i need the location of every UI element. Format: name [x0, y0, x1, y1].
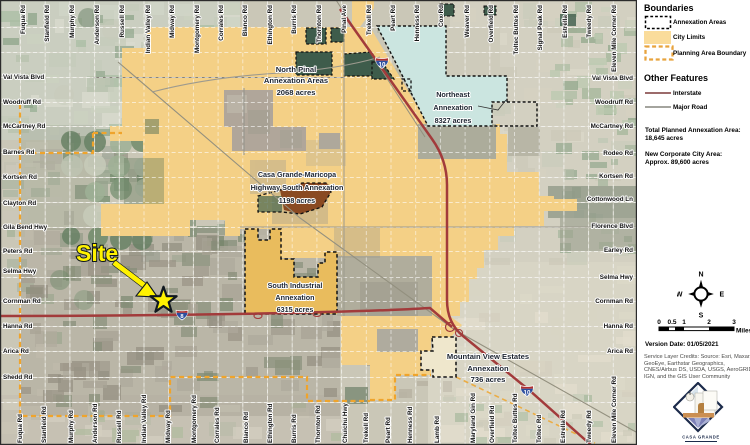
svg-text:Selma Hwy: Selma Hwy	[3, 268, 37, 275]
svg-text:Stanfield Rd: Stanfield Rd	[44, 5, 51, 42]
svg-text:Eleven Mile Corner Rd: Eleven Mile Corner Rd	[611, 5, 618, 72]
svg-text:Annexation: Annexation	[433, 103, 472, 112]
svg-text:N: N	[698, 272, 703, 279]
svg-text:Burris Rd: Burris Rd	[291, 5, 298, 34]
svg-text:McCartney Rd: McCartney Rd	[591, 123, 633, 130]
svg-text:Florence Blvd: Florence Blvd	[591, 223, 633, 230]
svg-text:Site: Site	[76, 240, 118, 266]
svg-text:Blanco Rd: Blanco Rd	[242, 5, 249, 36]
svg-text:Indian Valley Rd: Indian Valley Rd	[145, 5, 152, 53]
svg-text:10: 10	[524, 389, 531, 396]
svg-text:Kortsen Rd: Kortsen Rd	[3, 174, 37, 181]
svg-text:Hanna Rd: Hanna Rd	[3, 323, 33, 330]
svg-text:Henness Rd: Henness Rd	[414, 5, 421, 42]
svg-text:Rodeo Rd: Rodeo Rd	[603, 150, 633, 157]
svg-text:Trekell Rd: Trekell Rd	[366, 5, 373, 35]
svg-text:Selma Hwy: Selma Hwy	[600, 274, 634, 281]
svg-text:Overfield Rd: Overfield Rd	[488, 5, 495, 43]
svg-text:Indian Valley Rd: Indian Valley Rd	[141, 395, 148, 443]
svg-text:2: 2	[707, 319, 711, 326]
svg-text:Cornman Rd: Cornman Rd	[595, 298, 633, 305]
svg-text:Anderson Rd: Anderson Rd	[92, 403, 99, 443]
svg-text:2068 acres: 2068 acres	[277, 88, 316, 97]
svg-text:1198 acres: 1198 acres	[279, 196, 315, 205]
svg-text:0: 0	[657, 319, 661, 326]
svg-text:Fuqua Rd: Fuqua Rd	[17, 414, 24, 443]
svg-text:Hanna Rd: Hanna Rd	[604, 323, 634, 330]
svg-text:Peters Rd: Peters Rd	[3, 248, 33, 255]
svg-text:10: 10	[379, 61, 386, 68]
svg-text:Cornman Rd: Cornman Rd	[3, 298, 41, 305]
svg-text:Kortsen Rd: Kortsen Rd	[599, 173, 633, 180]
svg-text:Northeast: Northeast	[436, 90, 470, 99]
svg-text:Miles: Miles	[736, 328, 750, 335]
svg-text:Woodruff Rd: Woodruff Rd	[595, 99, 633, 106]
svg-text:E: E	[720, 292, 725, 299]
svg-text:Estrella Rd: Estrella Rd	[560, 410, 567, 443]
svg-text:Murphy Rd: Murphy Rd	[68, 410, 75, 443]
svg-text:Russell Rd: Russell Rd	[116, 410, 123, 443]
svg-text:Annexation Areas: Annexation Areas	[264, 76, 328, 85]
svg-text:Peart Rd: Peart Rd	[385, 417, 392, 443]
svg-text:Cox Rd: Cox Rd	[438, 5, 445, 27]
svg-text:Toltec Buttes Rd: Toltec Buttes Rd	[513, 5, 520, 55]
svg-text:Toltec Rd: Toltec Rd	[536, 415, 543, 443]
svg-text:North Pinal: North Pinal	[276, 65, 317, 74]
svg-text:3: 3	[732, 319, 736, 326]
svg-text:Tweedy Rd: Tweedy Rd	[586, 5, 593, 38]
svg-text:Arica Rd: Arica Rd	[3, 348, 29, 355]
svg-text:Weaver Rd: Weaver Rd	[464, 5, 471, 38]
svg-text:Montgomery Rd: Montgomery Rd	[194, 5, 201, 53]
svg-text:W: W	[677, 292, 683, 299]
svg-text:Fuqua Rd: Fuqua Rd	[20, 5, 27, 34]
svg-text:Tweedy Rd: Tweedy Rd	[586, 410, 593, 443]
svg-text:Earley Rd: Earley Rd	[604, 247, 633, 254]
svg-text:Corrales Rd: Corrales Rd	[218, 5, 225, 41]
svg-text:Midway Rd: Midway Rd	[169, 5, 176, 38]
svg-text:Casa Grande-Maricopa: Casa Grande-Maricopa	[258, 170, 337, 179]
svg-text:Pinal Ave: Pinal Ave	[341, 5, 348, 33]
svg-text:Eleven Mile Corner Rd: Eleven Mile Corner Rd	[611, 376, 618, 443]
svg-text:Barnes Rd: Barnes Rd	[3, 149, 35, 156]
svg-text:Thornton Rd: Thornton Rd	[315, 405, 322, 443]
svg-text:Estrella Rd: Estrella Rd	[562, 5, 569, 38]
svg-text:Clayton Rd: Clayton Rd	[3, 200, 36, 207]
svg-text:Overfield Rd: Overfield Rd	[489, 405, 496, 443]
svg-text:Shedd Rd: Shedd Rd	[3, 374, 33, 381]
svg-text:Mountain View Estates: Mountain View Estates	[447, 352, 529, 361]
svg-text:Cottonwood Ln: Cottonwood Ln	[587, 196, 633, 203]
svg-text:0.5: 0.5	[667, 319, 676, 326]
svg-text:Ethington Rd: Ethington Rd	[267, 403, 274, 443]
svg-text:Midway Rd: Midway Rd	[165, 410, 172, 443]
svg-text:Annexation: Annexation	[467, 364, 509, 373]
svg-text:Trekell Rd: Trekell Rd	[363, 413, 370, 443]
svg-text:Henness Rd: Henness Rd	[407, 406, 414, 443]
svg-text:736 acres: 736 acres	[471, 375, 506, 384]
svg-text:1: 1	[682, 319, 686, 326]
svg-text:Peart Rd: Peart Rd	[390, 5, 397, 31]
svg-text:Val Vista Blvd: Val Vista Blvd	[592, 75, 633, 82]
svg-text:CASA GRANDE: CASA GRANDE	[682, 435, 720, 440]
svg-text:Annexation: Annexation	[275, 293, 314, 302]
svg-text:Highway South Annexation: Highway South Annexation	[251, 183, 344, 192]
svg-text:Blanco Rd: Blanco Rd	[243, 412, 250, 443]
svg-text:South Industrial: South Industrial	[268, 281, 323, 290]
svg-text:Chuichu Hwy: Chuichu Hwy	[342, 403, 349, 443]
svg-text:Corrales Rd: Corrales Rd	[214, 407, 221, 443]
svg-text:Russell Rd: Russell Rd	[119, 5, 126, 38]
svg-text:Burris Rd: Burris Rd	[291, 414, 298, 443]
svg-text:Arica Rd: Arica Rd	[607, 348, 633, 355]
svg-text:Val Vista Blvd: Val Vista Blvd	[3, 74, 44, 81]
svg-text:McCartney Rd: McCartney Rd	[3, 123, 45, 130]
svg-text:Stanfield Rd: Stanfield Rd	[41, 406, 48, 443]
svg-text:Woodruff Rd: Woodruff Rd	[3, 99, 41, 106]
svg-text:Anderson Rd: Anderson Rd	[94, 5, 101, 45]
svg-text:8327 acres: 8327 acres	[435, 116, 472, 125]
svg-text:Thornton Rd: Thornton Rd	[316, 5, 323, 43]
svg-text:Gila Bend Hwy: Gila Bend Hwy	[3, 224, 48, 231]
svg-text:Lamb Rd: Lamb Rd	[434, 416, 441, 443]
svg-text:6315 acres: 6315 acres	[277, 305, 314, 314]
svg-text:Toltec Buttes Rd: Toltec Buttes Rd	[512, 393, 519, 443]
svg-text:Montgomery Rd: Montgomery Rd	[191, 395, 198, 443]
svg-text:Maryland Gin Rd: Maryland Gin Rd	[470, 393, 477, 443]
svg-text:Ethington Rd: Ethington Rd	[267, 5, 274, 45]
svg-text:Murphy Rd: Murphy Rd	[69, 5, 76, 38]
svg-text:Signal Peak Rd: Signal Peak Rd	[537, 5, 544, 51]
